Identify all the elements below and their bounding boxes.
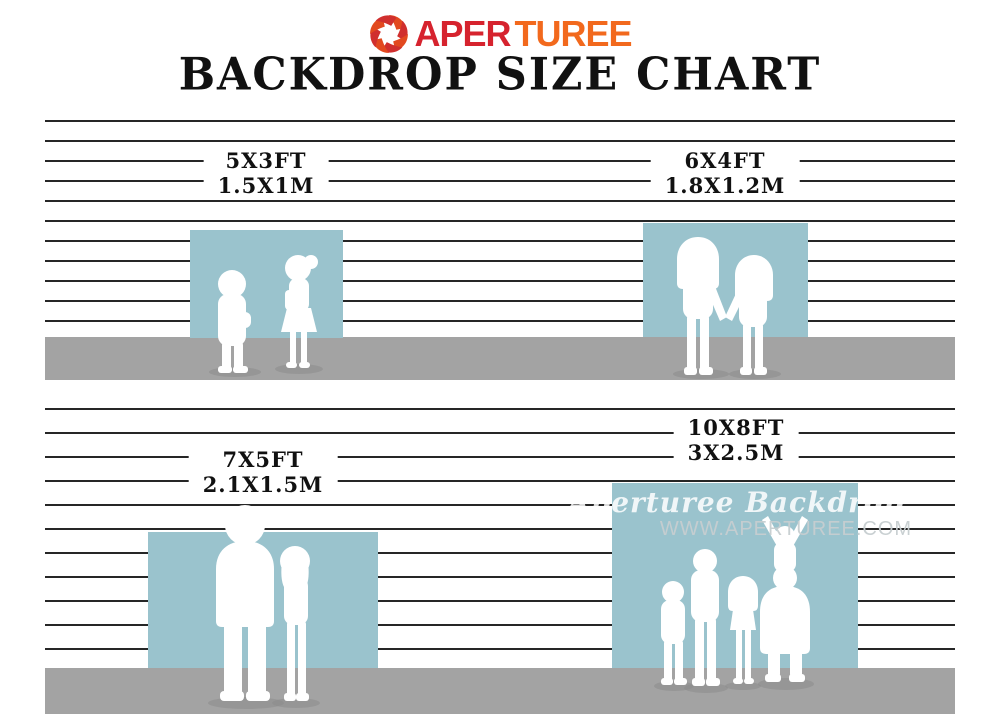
silhouette-girl-tall bbox=[677, 237, 727, 375]
silhouette-girl-short bbox=[725, 255, 773, 375]
scene-6x4 bbox=[665, 225, 790, 380]
silhouette-father bbox=[691, 549, 720, 686]
brand-name-red: APER bbox=[414, 16, 510, 52]
size-label-5x3: 5X3FT 1.5X1M bbox=[204, 148, 329, 200]
watermark-url: WWW.APERTUREE.COM bbox=[660, 518, 912, 541]
size-label-6x4: 6X4FT 1.8X1.2M bbox=[651, 148, 800, 200]
size-ft: 6X4FT bbox=[665, 149, 786, 174]
backdrop-size-chart: APERTUREE BACKDROP SIZE CHART bbox=[0, 0, 1000, 714]
silhouette-boy bbox=[661, 581, 687, 685]
watermark-script: Aperturee Backdrop bbox=[568, 486, 904, 519]
scene-7x5 bbox=[200, 503, 330, 711]
page-title: BACKDROP SIZE CHART bbox=[0, 51, 1000, 100]
silhouette-daughter bbox=[728, 576, 758, 684]
slat-wall-row-1 bbox=[45, 110, 955, 337]
size-m: 3X2.5M bbox=[688, 441, 785, 466]
silhouette-man bbox=[216, 505, 274, 701]
size-ft: 5X3FT bbox=[218, 149, 315, 174]
size-m: 1.8X1.2M bbox=[665, 174, 786, 199]
scene-5x3 bbox=[205, 250, 330, 378]
silhouette-toddler-girl bbox=[281, 255, 318, 368]
size-m: 2.1X1.5M bbox=[203, 473, 324, 498]
size-label-7x5: 7X5FT 2.1X1.5M bbox=[189, 447, 338, 499]
silhouette-woman bbox=[280, 546, 310, 701]
brand-name-orange: TUREE bbox=[515, 16, 632, 52]
size-ft: 7X5FT bbox=[203, 448, 324, 473]
size-m: 1.5X1M bbox=[218, 174, 315, 199]
size-label-10x8: 10X8FT 3X2.5M bbox=[674, 415, 799, 467]
floor-row-1 bbox=[45, 337, 955, 380]
size-ft: 10X8FT bbox=[688, 416, 785, 441]
silhouette-toddler-boy bbox=[218, 270, 251, 373]
